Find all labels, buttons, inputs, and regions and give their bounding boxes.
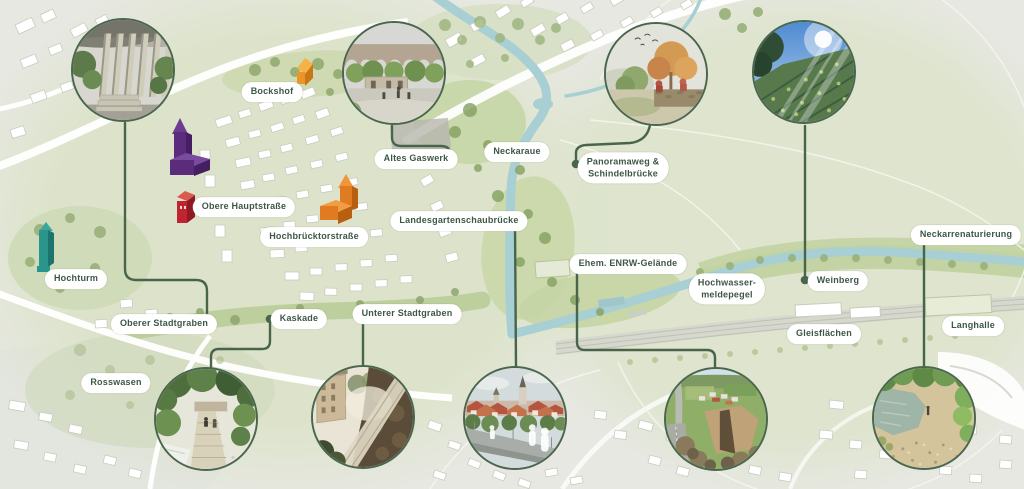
label-ehem-enrw-gelaende[interactable]: Ehem. ENRW-Gelände bbox=[570, 254, 687, 274]
label-hochwasser-line1: Hochwasser- bbox=[698, 277, 756, 289]
label-bockshof-text: Bockshof bbox=[251, 86, 294, 96]
label-langhalle[interactable]: Langhalle bbox=[942, 316, 1004, 336]
label-rosswasen[interactable]: Rosswasen bbox=[81, 373, 150, 393]
label-ehem-enrw-text: Ehem. ENRW-Gelände bbox=[579, 258, 678, 268]
label-unterer-stadtgraben[interactable]: Unterer Stadtgraben bbox=[353, 304, 462, 324]
photo-neckarrenaturierung[interactable] bbox=[872, 366, 976, 470]
label-langhalle-text: Langhalle bbox=[951, 320, 995, 330]
label-hochbruecktorstrasse-text: Hochbrücktorstraße bbox=[269, 231, 359, 241]
label-rosswasen-text: Rosswasen bbox=[90, 377, 141, 387]
aerial-image bbox=[666, 369, 766, 469]
label-oberer-stadtgraben-text: Oberer Stadtgraben bbox=[120, 318, 208, 328]
label-hochbruecktorstrasse[interactable]: Hochbrücktorstraße bbox=[260, 227, 368, 247]
label-altes-gaswerk[interactable]: Altes Gaswerk bbox=[375, 149, 458, 169]
garden-image bbox=[156, 369, 256, 469]
label-hochwasser-line2: meldepegel bbox=[698, 289, 756, 301]
colonnade-image bbox=[73, 20, 173, 120]
label-landesgartenschaubruecke[interactable]: Landesgartenschaubrücke bbox=[390, 211, 527, 231]
label-neckarrenaturierung-text: Neckarrenaturierung bbox=[920, 229, 1012, 239]
label-obere-hauptstrasse-text: Obere Hauptstraße bbox=[202, 201, 286, 211]
connector-landesgartenschaubruecke bbox=[515, 225, 516, 367]
label-oberer-stadtgraben[interactable]: Oberer Stadtgraben bbox=[111, 314, 217, 334]
label-neckarrenaturierung[interactable]: Neckarrenaturierung bbox=[911, 225, 1021, 245]
orange-church-marker[interactable] bbox=[318, 174, 362, 233]
bridge-town-image bbox=[465, 368, 565, 468]
photo-altes-gaswerk[interactable] bbox=[342, 21, 446, 125]
vineyard-image bbox=[754, 22, 854, 122]
gaswerk-image bbox=[344, 23, 444, 123]
label-neckaraue[interactable]: Neckaraue bbox=[484, 142, 549, 162]
label-hochturm-text: Hochturm bbox=[54, 273, 98, 283]
purple-church-marker[interactable] bbox=[166, 118, 214, 185]
label-weinberg[interactable]: Weinberg bbox=[808, 271, 868, 291]
label-gleisflaechen[interactable]: Gleisflächen bbox=[787, 324, 861, 344]
label-bockshof[interactable]: Bockshof bbox=[242, 82, 303, 102]
label-hochwassermeldepegel[interactable]: Hochwasser- meldepegel bbox=[689, 273, 765, 304]
label-obere-hauptstrasse[interactable]: Obere Hauptstraße bbox=[193, 197, 295, 217]
label-kaskade[interactable]: Kaskade bbox=[271, 309, 327, 329]
photo-landesgartenschaubruecke[interactable] bbox=[463, 366, 567, 470]
label-panoramaweg-schindelbruecke[interactable]: Panoramaweg & Schindelbrücke bbox=[578, 152, 669, 183]
label-weinberg-text: Weinberg bbox=[817, 275, 859, 285]
photo-kaskade[interactable] bbox=[154, 367, 258, 471]
label-unterer-stadtgraben-text: Unterer Stadtgraben bbox=[362, 308, 453, 318]
label-landesgartenschaubruecke-text: Landesgartenschaubrücke bbox=[399, 215, 518, 225]
panorama-image bbox=[606, 24, 706, 124]
photo-unterer-stadtgraben[interactable] bbox=[311, 365, 415, 469]
connector-kaskade bbox=[211, 324, 270, 369]
label-kaskade-text: Kaskade bbox=[280, 313, 318, 323]
photo-weinberg[interactable] bbox=[752, 20, 856, 124]
ravine-image bbox=[313, 367, 413, 467]
label-gleisflaechen-text: Gleisflächen bbox=[796, 328, 852, 338]
label-panoramaweg-line2: Schindelbrücke bbox=[587, 168, 660, 180]
label-panoramaweg-line1: Panoramaweg & bbox=[587, 156, 660, 168]
river-image bbox=[874, 368, 974, 468]
label-altes-gaswerk-text: Altes Gaswerk bbox=[384, 153, 449, 163]
label-neckaraue-text: Neckaraue bbox=[493, 146, 540, 156]
site-plan-map: Bockshof Altes Gaswerk Neckaraue Panoram… bbox=[0, 0, 1024, 489]
label-hochturm[interactable]: Hochturm bbox=[45, 269, 107, 289]
photo-oberer-stadtgraben[interactable] bbox=[71, 18, 175, 122]
photo-panoramaweg[interactable] bbox=[604, 22, 708, 126]
photo-ehem-enrw[interactable] bbox=[664, 367, 768, 471]
